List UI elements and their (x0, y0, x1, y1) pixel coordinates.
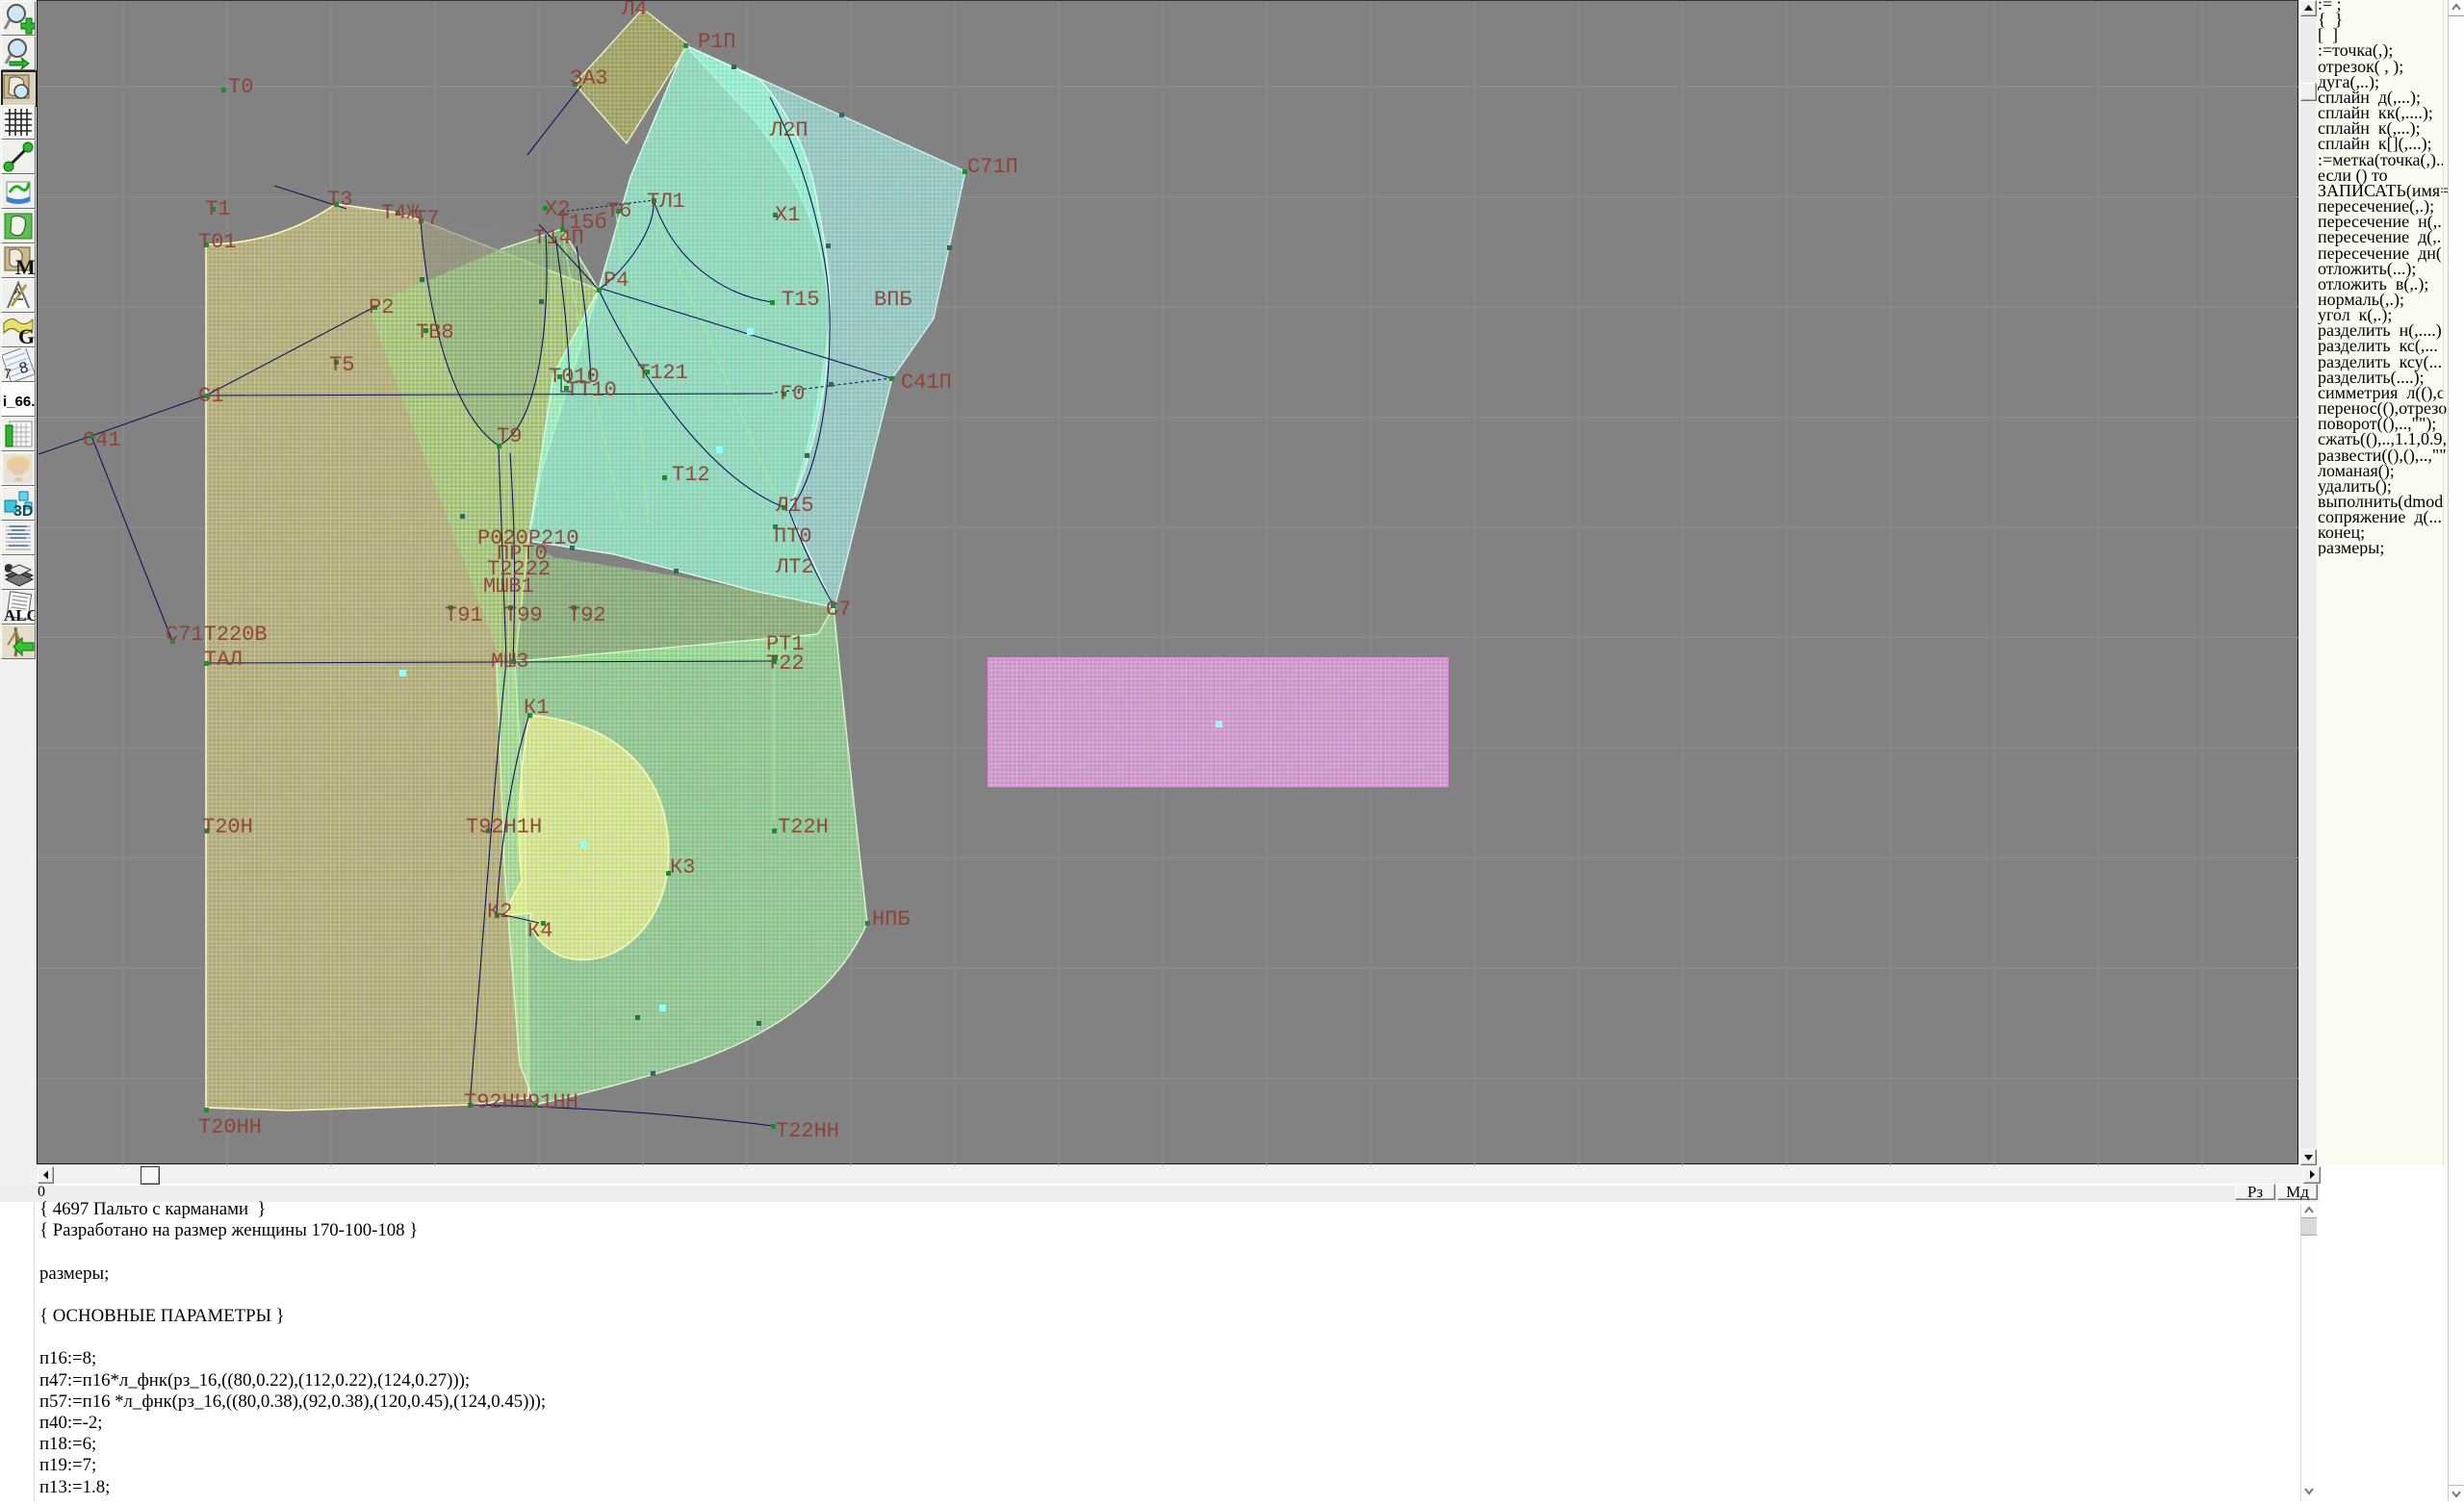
svg-text:Т14П: Т14П (533, 226, 584, 250)
svg-text:Т91: Т91 (445, 603, 483, 627)
svg-text:Р4: Р4 (603, 268, 629, 293)
svg-text:ВПБ: ВПБ (874, 288, 912, 312)
svg-text:С71Т220В: С71Т220В (166, 623, 268, 647)
svg-text:К2: К2 (487, 900, 512, 924)
svg-text:С1: С1 (198, 384, 223, 408)
svg-text:С7: С7 (826, 598, 851, 622)
svg-text:Т01: Т01 (198, 230, 237, 254)
svg-text:3D: 3D (13, 503, 33, 520)
svg-text:Т20Н: Т20Н (202, 815, 253, 839)
svg-text:НПБ: НПБ (872, 907, 911, 932)
svg-text:ТАЛ: ТАЛ (204, 648, 243, 672)
svg-text:Х1: Х1 (775, 203, 800, 227)
svg-text:ЛТ2: ЛТ2 (775, 555, 814, 579)
svg-text:Т7: Т7 (414, 207, 439, 231)
svg-text:Г0: Г0 (780, 382, 805, 406)
svg-text:Л15: Л15 (775, 494, 814, 518)
svg-text:Л2П: Л2П (769, 118, 808, 142)
svg-text:A: A (14, 287, 20, 296)
svg-text:С41П: С41П (901, 370, 952, 395)
svg-text:Т12: Т12 (672, 463, 710, 487)
svg-text:Т15: Т15 (782, 288, 820, 312)
svg-text:ЗА3: ЗА3 (570, 66, 608, 90)
svg-text:Т99: Т99 (504, 603, 543, 627)
svg-text:ТТ10: ТТ10 (566, 378, 617, 402)
svg-text:МШВ1: МШВ1 (483, 574, 534, 599)
svg-text:Т22НН: Т22НН (776, 1119, 839, 1143)
svg-text:ТЛ1: ТЛ1 (647, 190, 685, 214)
svg-text:Т3: Т3 (327, 188, 352, 212)
svg-text:С71П: С71П (967, 155, 1018, 179)
svg-text:Т6: Т6 (606, 199, 631, 223)
svg-text:ТВ8: ТВ8 (416, 320, 454, 345)
svg-text:Т22: Т22 (766, 651, 805, 676)
svg-text:Т20НН: Т20НН (198, 1115, 262, 1139)
svg-text:Р2: Р2 (369, 295, 394, 319)
svg-text:Т1: Т1 (205, 197, 230, 221)
svg-text:7: 7 (4, 366, 12, 381)
svg-text:К4: К4 (527, 919, 552, 943)
svg-text:Т121: Т121 (637, 361, 688, 385)
svg-text:Т9: Т9 (497, 424, 522, 448)
svg-text:С41: С41 (83, 428, 121, 452)
svg-text:Т92Н1Н: Т92Н1Н (466, 815, 542, 839)
svg-text:Т22Н: Т22Н (778, 815, 829, 839)
svg-text:Т92: Т92 (568, 603, 606, 627)
svg-text:Р1П: Р1П (698, 30, 736, 54)
svg-text:Л4: Л4 (621, 1, 647, 21)
svg-text:К1: К1 (524, 696, 549, 720)
svg-text:Т92НН91НН: Т92НН91НН (464, 1090, 578, 1114)
svg-text:M: M (15, 255, 35, 277)
svg-text:Т0: Т0 (228, 75, 253, 99)
svg-text:ALG: ALG (4, 606, 35, 624)
svg-text:i_66.: i_66. (3, 394, 35, 410)
svg-text:G: G (18, 324, 35, 346)
svg-text:ПТ0: ПТ0 (774, 524, 812, 549)
svg-text:МШ3: МШ3 (491, 650, 529, 674)
svg-text:Т5: Т5 (329, 353, 354, 377)
svg-text:К3: К3 (670, 855, 695, 880)
